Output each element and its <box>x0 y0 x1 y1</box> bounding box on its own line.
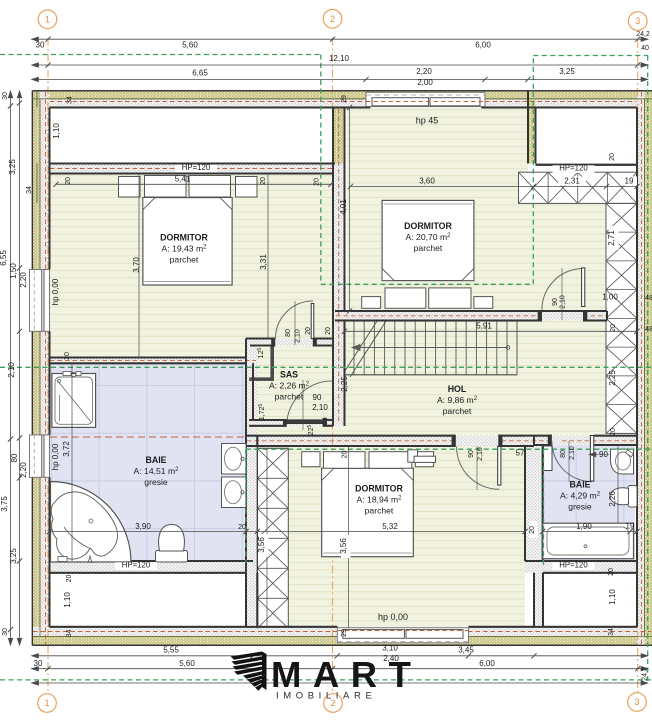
svg-text:4,01: 4,01 <box>339 199 348 215</box>
svg-text:A: 9,86 m2: A: 9,86 m2 <box>437 395 478 405</box>
svg-text:20: 20 <box>65 177 72 185</box>
svg-text:3,45: 3,45 <box>458 646 474 655</box>
svg-text:hp 0,00: hp 0,00 <box>51 443 60 470</box>
svg-text:A: 18,94 m2: A: 18,94 m2 <box>357 495 403 505</box>
svg-text:5,32: 5,32 <box>382 522 398 531</box>
svg-text:2,10: 2,10 <box>312 403 328 412</box>
svg-text:2,10: 2,10 <box>569 446 576 460</box>
svg-text:20: 20 <box>529 526 536 534</box>
svg-text:3,25: 3,25 <box>8 159 17 175</box>
svg-text:80: 80 <box>560 450 567 458</box>
svg-text:1,10: 1,10 <box>52 123 61 139</box>
svg-text:HP=120: HP=120 <box>122 561 151 570</box>
svg-text:20: 20 <box>610 428 617 436</box>
svg-text:3: 3 <box>635 16 640 26</box>
svg-text:29: 29 <box>341 629 348 637</box>
svg-text:gresie: gresie <box>144 477 168 487</box>
svg-text:SAS: SAS <box>280 370 298 380</box>
svg-text:hp 0,00: hp 0,00 <box>378 612 408 622</box>
svg-text:DORMITOR: DORMITOR <box>404 221 452 231</box>
svg-text:20: 20 <box>325 327 332 335</box>
svg-text:5,60: 5,60 <box>182 41 198 50</box>
svg-text:BAIE: BAIE <box>569 480 590 490</box>
svg-text:BAIE: BAIE <box>145 455 166 465</box>
svg-text:HP=120: HP=120 <box>182 163 211 172</box>
svg-text:80: 80 <box>10 453 19 462</box>
svg-text:HP=120: HP=120 <box>559 561 588 570</box>
svg-text:24,2: 24,2 <box>636 31 650 38</box>
svg-text:20: 20 <box>609 153 616 161</box>
svg-text:5,91: 5,91 <box>476 322 492 331</box>
svg-text:2,25: 2,25 <box>340 376 349 392</box>
svg-text:HP=120: HP=120 <box>559 164 588 173</box>
svg-text:3,75: 3,75 <box>0 496 9 512</box>
svg-text:1,10: 1,10 <box>63 592 72 608</box>
svg-text:hp 45: hp 45 <box>416 116 439 126</box>
svg-text:20: 20 <box>260 177 267 185</box>
svg-text:48: 48 <box>645 326 652 333</box>
svg-text:3,31: 3,31 <box>259 254 268 270</box>
svg-text:6,55: 6,55 <box>0 250 8 266</box>
svg-text:parchet: parchet <box>170 255 199 265</box>
svg-text:6,00: 6,00 <box>475 41 491 50</box>
svg-text:3,56: 3,56 <box>257 537 266 553</box>
svg-text:2,25: 2,25 <box>608 370 617 386</box>
svg-text:A: 2,26 m2: A: 2,26 m2 <box>269 381 310 391</box>
svg-text:A: 20,70 m2: A: 20,70 m2 <box>406 232 452 242</box>
svg-text:2,10: 2,10 <box>560 295 567 309</box>
svg-text:2,31: 2,31 <box>564 177 580 186</box>
svg-text:3,90: 3,90 <box>135 522 151 531</box>
svg-text:1,50: 1,50 <box>9 263 18 279</box>
svg-text:parchet: parchet <box>414 243 443 253</box>
svg-text:19: 19 <box>626 522 635 531</box>
svg-text:3,70: 3,70 <box>132 257 141 273</box>
svg-text:MART: MART <box>271 654 422 695</box>
svg-text:5,41: 5,41 <box>175 175 191 184</box>
svg-text:20: 20 <box>64 352 71 360</box>
svg-text:5,60: 5,60 <box>179 659 195 668</box>
svg-text:20: 20 <box>610 324 617 332</box>
svg-text:12,10: 12,10 <box>329 54 350 63</box>
svg-text:gresie: gresie <box>568 502 592 512</box>
svg-text:30: 30 <box>34 659 43 668</box>
svg-text:2,20: 2,20 <box>416 67 432 76</box>
svg-text:HOL: HOL <box>448 384 467 394</box>
svg-text:2,71: 2,71 <box>607 230 616 246</box>
svg-text:1,00: 1,00 <box>602 293 618 302</box>
svg-text:3: 3 <box>634 697 639 707</box>
svg-text:1: 1 <box>44 698 49 708</box>
svg-text:DORMITOR: DORMITOR <box>160 233 208 243</box>
svg-text:3,72: 3,72 <box>62 441 71 457</box>
svg-text:34: 34 <box>608 628 615 636</box>
svg-text:3,56: 3,56 <box>339 538 348 554</box>
svg-text:34: 34 <box>67 96 74 104</box>
svg-text:parchet: parchet <box>365 506 394 516</box>
svg-text:parchet: parchet <box>443 406 472 416</box>
svg-text:1,10: 1,10 <box>608 589 617 605</box>
svg-text:20: 20 <box>66 575 73 583</box>
svg-text:2,26: 2,26 <box>608 491 617 507</box>
svg-text:3,25: 3,25 <box>9 548 18 564</box>
svg-text:90: 90 <box>313 393 322 402</box>
svg-text:2,10: 2,10 <box>7 362 16 378</box>
svg-text:2,20: 2,20 <box>19 462 28 478</box>
svg-text:6,65: 6,65 <box>192 69 208 78</box>
svg-text:2,00: 2,00 <box>417 78 433 87</box>
svg-text:20: 20 <box>314 178 321 186</box>
svg-text:20: 20 <box>305 327 312 335</box>
svg-text:30: 30 <box>36 41 45 50</box>
svg-text:hp 0,00: hp 0,00 <box>51 278 60 305</box>
svg-text:29: 29 <box>341 95 348 103</box>
svg-text:1,90: 1,90 <box>576 522 592 531</box>
svg-text:80: 80 <box>285 329 292 337</box>
svg-text:20: 20 <box>342 451 349 459</box>
svg-text:24,2: 24,2 <box>642 667 649 681</box>
svg-text:57: 57 <box>516 449 525 458</box>
svg-text:3,60: 3,60 <box>419 177 435 186</box>
svg-text:A: 14,51 m2: A: 14,51 m2 <box>134 466 180 476</box>
svg-text:20: 20 <box>238 524 246 531</box>
svg-text:90: 90 <box>599 450 608 459</box>
svg-text:IMOBILIARE: IMOBILIARE <box>276 691 376 702</box>
svg-text:A: 19,43 m2: A: 19,43 m2 <box>162 244 208 254</box>
svg-text:2,10: 2,10 <box>477 447 484 461</box>
svg-text:19: 19 <box>625 177 634 186</box>
svg-text:20: 20 <box>608 568 615 576</box>
svg-text:5,55: 5,55 <box>163 646 179 655</box>
svg-text:2,10: 2,10 <box>295 329 302 343</box>
svg-text:34: 34 <box>26 186 33 194</box>
svg-text:DORMITOR: DORMITOR <box>355 484 403 494</box>
svg-text:A: 4,29 m2: A: 4,29 m2 <box>560 491 601 501</box>
svg-text:2: 2 <box>330 14 335 24</box>
svg-text:3,10: 3,10 <box>382 644 398 653</box>
svg-text:3,25: 3,25 <box>559 67 575 76</box>
svg-text:30: 30 <box>2 92 9 100</box>
svg-text:34: 34 <box>66 630 73 638</box>
svg-text:40: 40 <box>641 45 649 52</box>
svg-text:90: 90 <box>552 298 559 306</box>
svg-text:48: 48 <box>645 295 652 302</box>
svg-text:2,20: 2,20 <box>19 272 28 288</box>
svg-text:6,00: 6,00 <box>479 659 495 668</box>
svg-text:1: 1 <box>45 15 50 25</box>
svg-text:30: 30 <box>2 628 9 636</box>
svg-text:90: 90 <box>468 450 475 458</box>
svg-text:parchet: parchet <box>275 392 304 402</box>
